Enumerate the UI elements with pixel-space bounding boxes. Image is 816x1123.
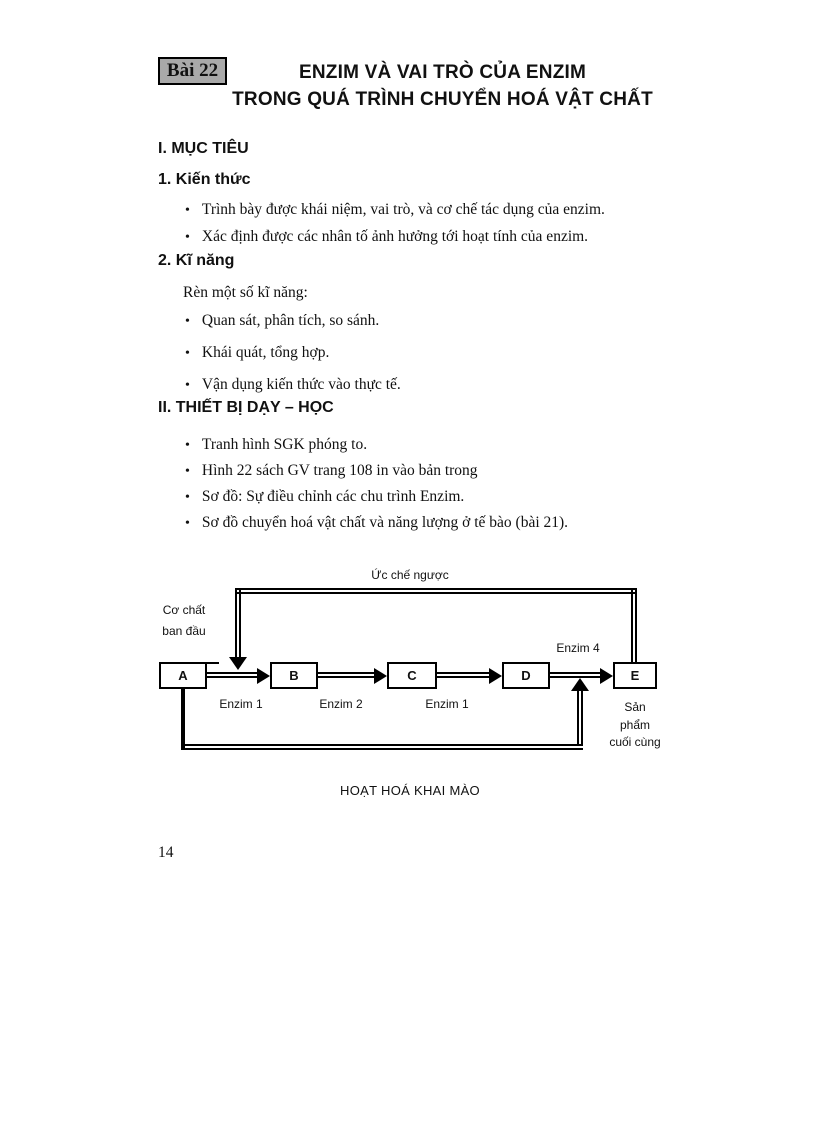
down-arrowhead-icon (229, 657, 247, 670)
activation-line-bottom (181, 744, 583, 750)
right-arrowhead-icon (257, 668, 270, 684)
final-product-line2: phẩm (595, 717, 675, 735)
connector-c-d (436, 672, 490, 678)
right-arrowhead-icon (489, 668, 502, 684)
enzyme-label-2: Enzim 2 (301, 697, 381, 711)
document-page: Bài 22 ENZIM VÀ VAI TRÒ CỦA ENZIM TRONG … (0, 0, 816, 1123)
final-product-line1: Sản (595, 699, 675, 717)
diagram-box-b: B (270, 662, 318, 689)
enzyme-label-4: Enzim 4 (538, 641, 618, 655)
diagram-box-a: A (159, 662, 207, 689)
activation-line-right (577, 691, 583, 744)
diagram-box-d: D (502, 662, 550, 689)
activation-line-left (181, 689, 185, 750)
substrate-label-line2: ban đầu (153, 621, 215, 642)
enzyme-pathway-diagram: Ức chế ngược Cơ chất ban đầu A B C D E E… (0, 0, 816, 820)
substrate-label: Cơ chất ban đầu (153, 600, 215, 642)
feedback-line-top (235, 588, 637, 594)
connector-b-c (317, 672, 375, 678)
up-arrowhead-icon (571, 678, 589, 691)
final-product-label: Sản phẩm cuối cùng (595, 699, 675, 752)
feedback-line-left (235, 588, 241, 657)
feedback-inhibition-label: Ức chế ngược (340, 568, 480, 582)
box-a-top-tick (207, 662, 219, 664)
enzyme-label-3: Enzim 1 (407, 697, 487, 711)
right-arrowhead-icon (374, 668, 387, 684)
page-number: 14 (158, 844, 174, 862)
feedback-line-right (631, 588, 637, 663)
connector-a-b (207, 672, 259, 678)
diagram-caption: HOẠT HOÁ KHAI MÀO (310, 783, 510, 798)
diagram-box-e: E (613, 662, 657, 689)
substrate-label-line1: Cơ chất (153, 600, 215, 621)
right-arrowhead-icon (600, 668, 613, 684)
final-product-line3: cuối cùng (595, 734, 675, 752)
diagram-box-c: C (387, 662, 437, 689)
enzyme-label-1: Enzim 1 (201, 697, 281, 711)
